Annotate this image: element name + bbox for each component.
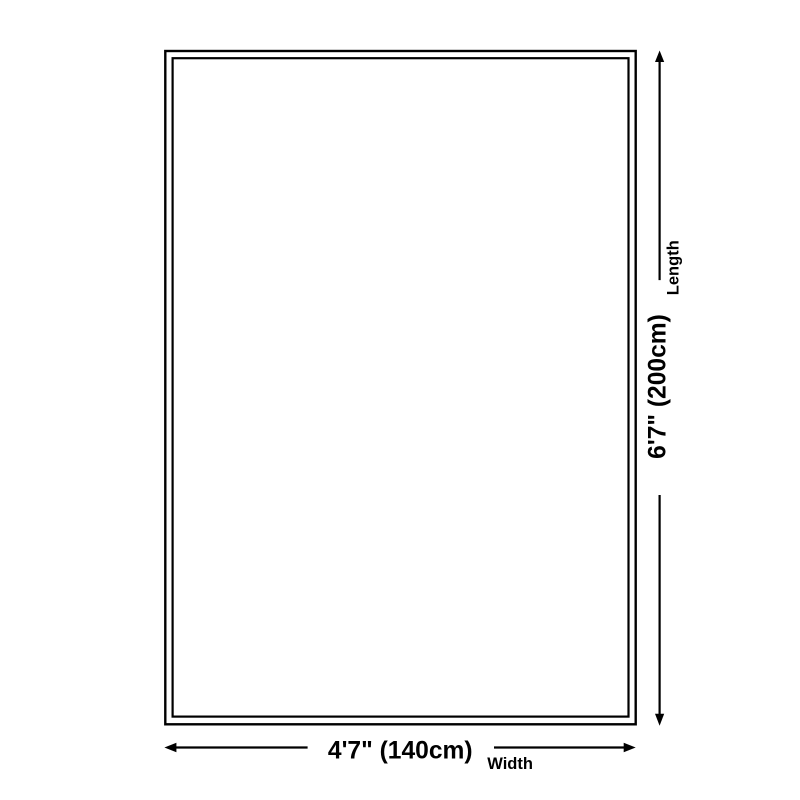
svg-text:4'7" (140cm): 4'7" (140cm)	[328, 737, 473, 764]
svg-text:6'7" (200cm): 6'7" (200cm)	[645, 314, 672, 459]
svg-text:Width: Width	[487, 755, 533, 773]
svg-text:Length: Length	[665, 240, 683, 295]
